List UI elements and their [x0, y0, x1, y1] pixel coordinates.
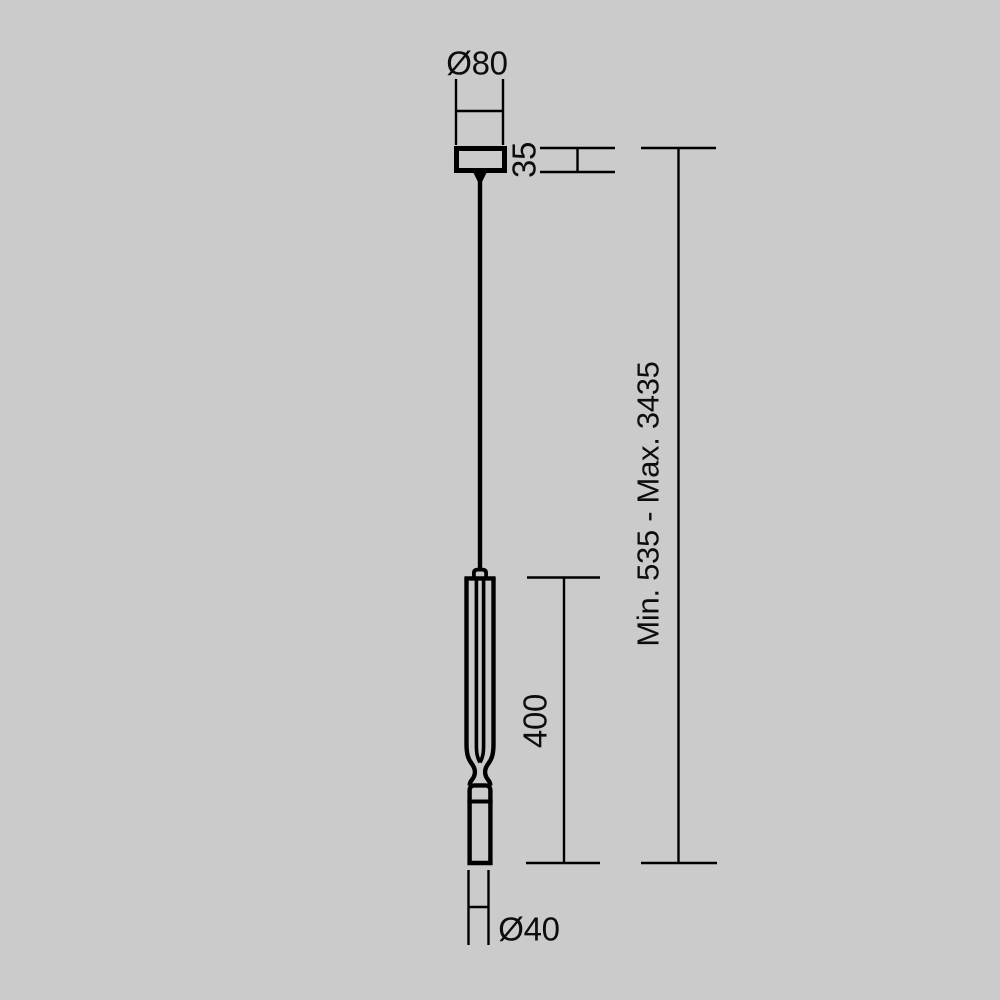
glass-tube	[464, 578, 495, 786]
technical-drawing-canvas: Ø80 35 Min. 535 - Max. 3435 400 Ø40	[0, 0, 1000, 1000]
drawing-svg	[0, 0, 1000, 1000]
dim-shade-diameter-lines	[469, 870, 489, 945]
lamp-base-outline	[470, 785, 491, 863]
dim-canopy-height-lines	[540, 148, 615, 172]
dim-canopy-diameter-lines	[456, 79, 503, 145]
glass-tube-outer-right-wall	[485, 578, 493, 786]
suspension-range-label: Min. 535 - Max. 3435	[633, 361, 664, 646]
dimension-lines	[456, 79, 717, 945]
lamp-base-cylinder	[467, 785, 492, 863]
glass-tube-inner-left-line	[476, 578, 480, 763]
canopy	[457, 149, 505, 171]
shade-height-label: 400	[519, 694, 552, 748]
glass-tube-inner-right-line	[480, 578, 484, 763]
glass-tube-outer-left-wall	[467, 578, 475, 786]
shade-diameter-label: Ø40	[498, 913, 559, 946]
canopy-height-label: 35	[508, 142, 541, 178]
fixture	[457, 149, 505, 864]
canopy-diameter-label: Ø80	[446, 47, 507, 80]
